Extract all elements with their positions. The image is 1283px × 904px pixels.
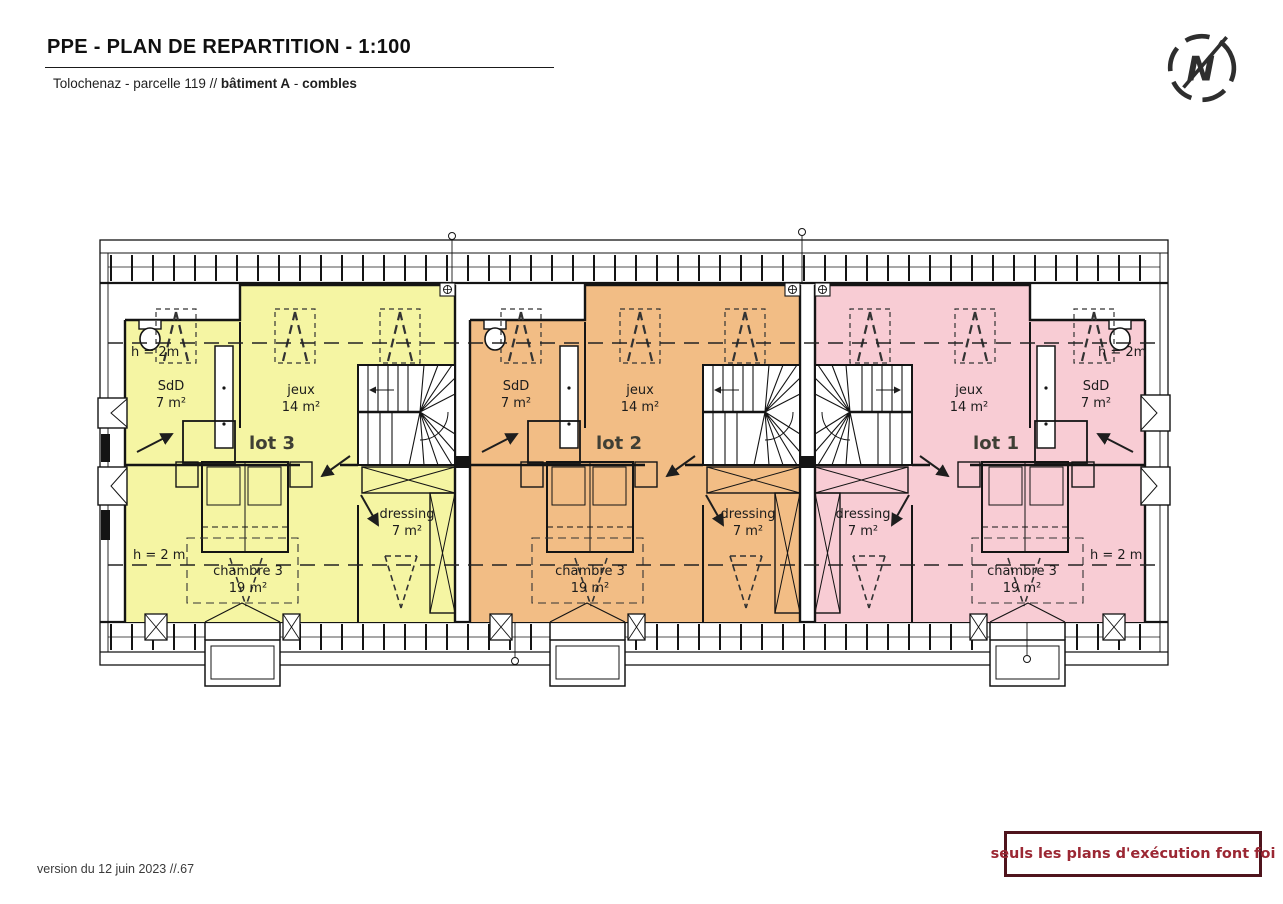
lot1-room-dressing-area: 7 m²	[848, 524, 878, 539]
lot3-room-jeux-name: jeux	[286, 383, 315, 398]
lot3-room-sdd-name: SdD	[158, 379, 185, 394]
lot3-room-chambre-name: chambre 3	[213, 564, 283, 579]
lot1-room-sdd-name: SdD	[1083, 379, 1110, 394]
version-note: version du 12 juin 2023 //.67	[37, 862, 194, 876]
lot1-room-jeux-name: jeux	[954, 383, 983, 398]
lot1-room-jeux-area: 14 m²	[950, 400, 989, 415]
disclaimer-text: seuls les plans d'exécution font foi	[991, 846, 1276, 862]
lot1-label: lot 1	[973, 433, 1019, 454]
lot3-room-chambre-area: 19 m²	[229, 581, 268, 596]
lot3-room-dressing-name: dressing	[380, 507, 435, 522]
lot2-room-chambre-area: 19 m²	[571, 581, 610, 596]
lot2-room-sdd-area: 7 m²	[501, 396, 531, 411]
lot2-room-chambre-name: chambre 3	[555, 564, 625, 579]
height-note-top-left: h = 2m	[131, 345, 179, 360]
lot3-room-sdd-area: 7 m²	[156, 396, 186, 411]
lot2-room-jeux-name: jeux	[625, 383, 654, 398]
lot1-room-sdd-area: 7 m²	[1081, 396, 1111, 411]
lot3-label: lot 3	[249, 433, 295, 454]
disclaimer-box: seuls les plans d'exécution font foi	[1004, 831, 1262, 877]
lot2-room-jeux-area: 14 m²	[621, 400, 660, 415]
height-note-top-right: h = 2m	[1098, 345, 1146, 360]
height-note-bottom-right: h = 2 m	[1090, 548, 1142, 563]
lot3-room-jeux-area: 14 m²	[282, 400, 321, 415]
lot1-room-chambre-area: 19 m²	[1003, 581, 1042, 596]
lot2-label: lot 2	[596, 433, 642, 454]
lot2-room-dressing-name: dressing	[721, 507, 776, 522]
lot2-room-dressing-area: 7 m²	[733, 524, 763, 539]
lot1-room-chambre-name: chambre 3	[987, 564, 1057, 579]
floor-plan: SdD 7 m² jeux 14 m² lot 3 dressing 7 m² …	[0, 0, 1283, 904]
lot3-room-dressing-area: 7 m²	[392, 524, 422, 539]
height-note-bottom-left: h = 2 m	[133, 548, 185, 563]
lot1-room-dressing-name: dressing	[836, 507, 891, 522]
lot2-room-sdd-name: SdD	[503, 379, 530, 394]
